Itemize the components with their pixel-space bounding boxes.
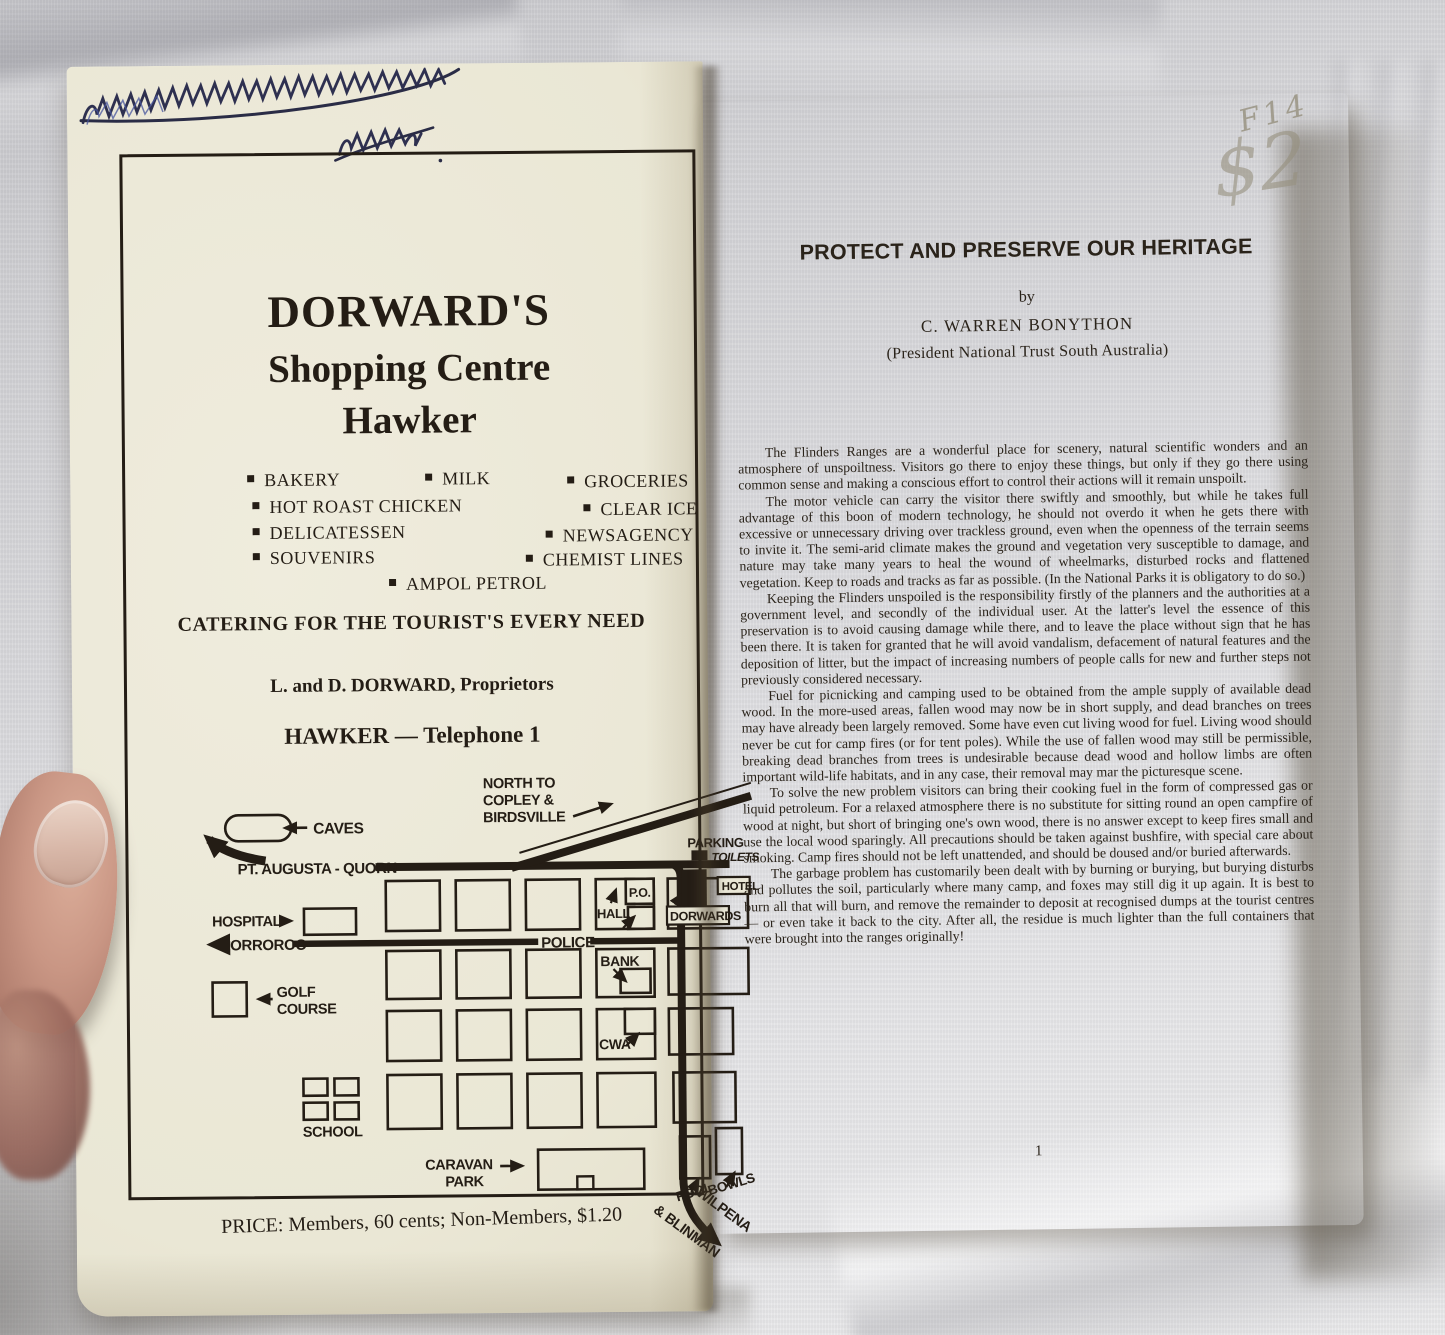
service-label: GROCERIES	[584, 470, 689, 491]
map-label-post-office: P.O.	[629, 886, 651, 900]
service-label: DELICATESSEN	[270, 522, 406, 543]
caravan-park-office	[577, 1176, 593, 1189]
school-block	[335, 1102, 359, 1119]
service-item: DELICATESSEN	[253, 522, 406, 544]
bullet-icon	[546, 531, 553, 538]
map-label-police: POLICE	[541, 934, 595, 951]
thumbnail	[24, 791, 119, 896]
book-photo-scene: DORWARD'S Shopping Centre Hawker BAKERY …	[0, 0, 1445, 1335]
bullet-icon	[567, 476, 574, 483]
service-item: MILK	[425, 468, 490, 490]
service-item: CLEAR ICE	[583, 498, 697, 520]
orroroo-road-east	[590, 940, 678, 941]
town-block	[526, 879, 580, 929]
ad-contact: HAWKER — Telephone 1	[127, 720, 697, 751]
service-item: HOT ROAST CHICKEN	[252, 495, 462, 518]
service-label: NEWSAGENCY	[563, 524, 694, 545]
map-label-caves: CAVES	[313, 820, 363, 837]
paragraph: To solve the new problem visitors can br…	[743, 778, 1314, 867]
town-block	[526, 949, 580, 997]
map-label-hall: HALL	[597, 906, 631, 921]
page-number: 1	[715, 1139, 1363, 1165]
paragraph: Keeping the Flinders unspoiled is the re…	[740, 583, 1311, 688]
bullet-icon	[526, 555, 533, 562]
map-label-golf: COURSE	[277, 1001, 338, 1018]
map-label-caravan: PARK	[445, 1174, 484, 1190]
service-item: BAKERY	[247, 469, 340, 491]
article-author: C. WARREN BONYTHON	[703, 311, 1351, 340]
service-item: GROCERIES	[567, 470, 689, 492]
map-label-north: BIRDSVILLE	[483, 809, 566, 826]
ad-tagline: CATERING FOR THE TOURIST'S EVERY NEED	[126, 609, 696, 637]
service-item: SOUVENIRS	[253, 547, 376, 569]
map-label-caravan: CARAVAN	[425, 1157, 493, 1174]
town-block	[597, 1073, 655, 1128]
school-block	[334, 1078, 358, 1095]
byline-prefix: by	[703, 284, 1351, 311]
town-block	[527, 1009, 581, 1059]
town-block	[457, 1010, 511, 1060]
map-label-north: NORTH TO	[483, 776, 556, 793]
article-body: The Flinders Ranges are a wonderful plac…	[738, 438, 1315, 948]
article-title: PROTECT AND PRESERVE OUR HERITAGE	[702, 233, 1350, 267]
advertisement-border: DORWARD'S Shopping Centre Hawker BAKERY …	[119, 149, 704, 1200]
school-block	[304, 1103, 328, 1120]
ad-proprietors: L. and D. DORWARD, Proprietors	[127, 672, 697, 699]
paragraph: The garbage problem has customarily been…	[744, 859, 1315, 948]
town-block	[527, 1073, 581, 1127]
ad-title-line3: Hawker	[124, 395, 694, 445]
bullet-icon	[389, 579, 396, 586]
orroroo-road	[292, 942, 538, 944]
right-page: F14 $2 PROTECT AND PRESERVE OUR HERITAGE…	[700, 93, 1364, 1234]
town-block	[387, 1011, 441, 1061]
service-label: CHEMIST LINES	[543, 548, 684, 569]
map-label-cwa: CWA	[599, 1036, 631, 1052]
cwa-sub-building	[625, 1009, 655, 1034]
town-block	[386, 881, 440, 931]
author-title: (President National Trust South Australi…	[703, 339, 1351, 366]
bullet-icon	[252, 502, 259, 509]
map-label-golf: GOLF	[277, 985, 316, 1001]
service-label: CLEAR ICE	[600, 498, 697, 519]
bullet-icon	[425, 474, 432, 481]
bullet-icon	[253, 553, 260, 560]
hospital-building	[304, 908, 356, 934]
service-item: AMPOL PETROL	[389, 573, 547, 595]
map-label-school: SCHOOL	[303, 1124, 363, 1141]
bullet-icon	[247, 475, 254, 482]
service-label: MILK	[442, 468, 490, 488]
paragraph: The Flinders Ranges are a wonderful plac…	[738, 438, 1309, 495]
town-block	[456, 880, 510, 930]
bullet-icon	[583, 504, 590, 511]
town-block	[457, 1074, 511, 1128]
north-arrow	[573, 804, 611, 816]
service-item: NEWSAGENCY	[546, 524, 694, 546]
town-block	[386, 951, 440, 999]
town-map: PT. AUGUSTA - QUORN NORTH TO COPLEY & BI…	[185, 764, 764, 1279]
bullet-icon	[253, 528, 260, 535]
map-label-highway: PT. AUGUSTA - QUORN	[237, 860, 396, 878]
ad-title-name: DORWARD'S	[123, 282, 693, 339]
service-label: SOUVENIRS	[270, 547, 376, 568]
map-label-north: COPLEY &	[483, 793, 555, 810]
paragraph: Fuel for picnicking and camping used to …	[741, 681, 1312, 786]
map-label-hospital: HOSPITAL	[212, 914, 282, 931]
golf-course-block	[213, 982, 247, 1016]
pencil-price-mark: $2	[1210, 115, 1310, 215]
hall-arrow	[611, 890, 616, 903]
map-label-orroroo: ORROROO	[230, 937, 307, 955]
town-block	[456, 950, 510, 998]
left-page: DORWARD'S Shopping Centre Hawker BAKERY …	[67, 61, 714, 1317]
service-label: AMPOL PETROL	[406, 573, 547, 594]
map-label-bank: BANK	[600, 953, 639, 969]
paragraph: The motor vehicle can carry the visitor …	[738, 486, 1309, 591]
service-item: CHEMIST LINES	[526, 548, 684, 570]
service-label: HOT ROAST CHICKEN	[269, 495, 462, 517]
town-block	[387, 1075, 441, 1129]
service-label: BAKERY	[264, 469, 340, 490]
caves-shape	[225, 815, 291, 842]
ad-title-line2: Shopping Centre	[124, 343, 694, 393]
school-block	[303, 1079, 327, 1096]
